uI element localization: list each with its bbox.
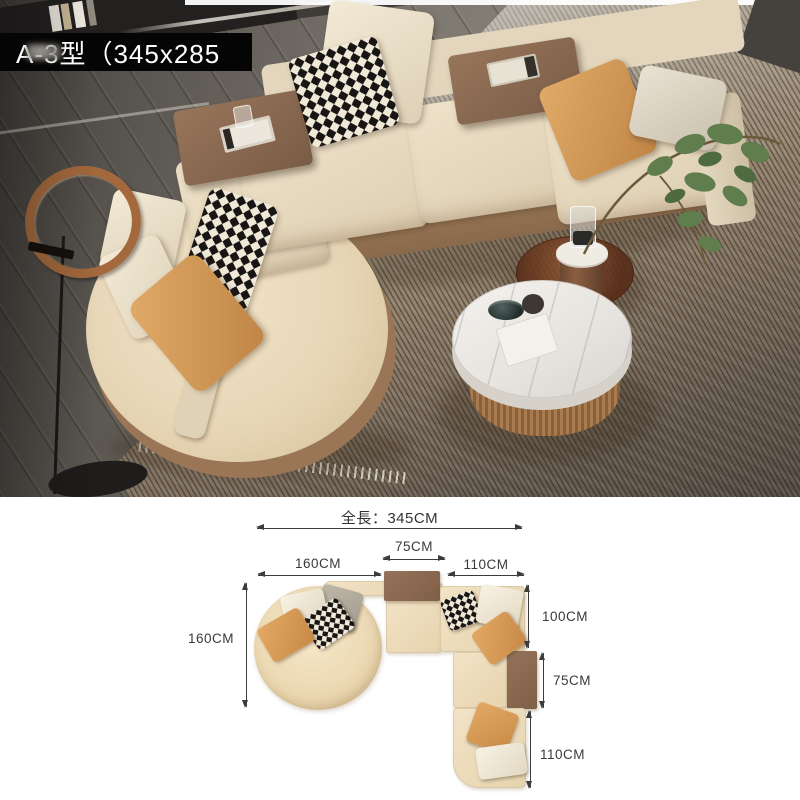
product-image: A-3型（345x285 全長：345CM 75CM 160CM 110C bbox=[0, 0, 800, 800]
dim-right-top-arrow bbox=[528, 585, 529, 648]
dim-right-middle-arrow bbox=[543, 653, 544, 708]
dim-top-right-arrow bbox=[448, 575, 524, 576]
dim-right-bottom-label: 110CM bbox=[540, 747, 585, 762]
dim-top-middle-label: 75CM bbox=[383, 539, 445, 554]
dim-right-middle-label: 75CM bbox=[553, 673, 591, 688]
dim-top-right-label: 110CM bbox=[448, 557, 524, 572]
dim-top-left-arrow bbox=[258, 575, 381, 576]
dim-left-arrow bbox=[246, 583, 247, 707]
total-length-label: 全長：345CM bbox=[257, 507, 522, 528]
dim-top-left-label: 160CM bbox=[256, 556, 380, 571]
dimension-diagram: 全長：345CM 75CM 160CM 110CM 160CM 100CM 75… bbox=[0, 497, 800, 800]
dim-left-label: 160CM bbox=[168, 631, 234, 646]
total-length-arrow bbox=[257, 528, 522, 529]
diagram-pillow-white bbox=[475, 742, 528, 781]
blurred-watermark-icon bbox=[26, 44, 62, 60]
model-label-bar: A-3型（345x285 bbox=[0, 33, 252, 71]
diagram-middle-seat bbox=[386, 598, 441, 653]
dim-right-bottom-arrow bbox=[530, 711, 531, 788]
diagram-right-armrest bbox=[507, 651, 537, 709]
diagram-top-armrest bbox=[384, 571, 440, 601]
dim-right-top-label: 100CM bbox=[542, 609, 588, 624]
living-room-photo: A-3型（345x285 bbox=[0, 0, 800, 497]
photo-vignette bbox=[0, 0, 800, 497]
dim-top-middle-arrow bbox=[383, 559, 445, 560]
